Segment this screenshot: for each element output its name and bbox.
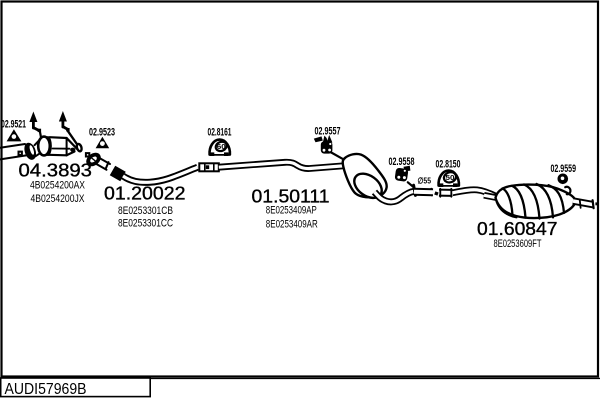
svg-text:01.20022: 01.20022: [104, 184, 186, 204]
svg-text:02.9521: 02.9521: [1, 119, 26, 131]
svg-text:4B0254200JX: 4B0254200JX: [31, 193, 85, 205]
svg-text:04.3893: 04.3893: [19, 161, 93, 181]
svg-text:02.9523: 02.9523: [89, 127, 115, 139]
svg-text:01.50111: 01.50111: [252, 187, 330, 207]
svg-text:02.9558: 02.9558: [389, 156, 415, 168]
svg-text:8E0253301CC: 8E0253301CC: [118, 217, 173, 229]
svg-text:4B0254200AX: 4B0254200AX: [30, 180, 85, 192]
svg-text:02.8161: 02.8161: [208, 127, 232, 139]
svg-text:02.8150: 02.8150: [436, 159, 461, 171]
svg-text:AUDI57969B: AUDI57969B: [5, 381, 87, 398]
svg-text:8E0253609FT: 8E0253609FT: [494, 238, 542, 250]
svg-text:01.60847: 01.60847: [477, 219, 558, 239]
svg-text:8E0253301CB: 8E0253301CB: [118, 205, 173, 217]
svg-text:∅55: ∅55: [418, 176, 432, 186]
svg-text:8E0253409AR: 8E0253409AR: [266, 219, 318, 231]
svg-text:02.9559: 02.9559: [551, 163, 577, 175]
svg-text:50: 50: [446, 173, 455, 182]
svg-text:60: 60: [217, 142, 226, 151]
svg-text:8E0253409AP: 8E0253409AP: [266, 205, 317, 217]
